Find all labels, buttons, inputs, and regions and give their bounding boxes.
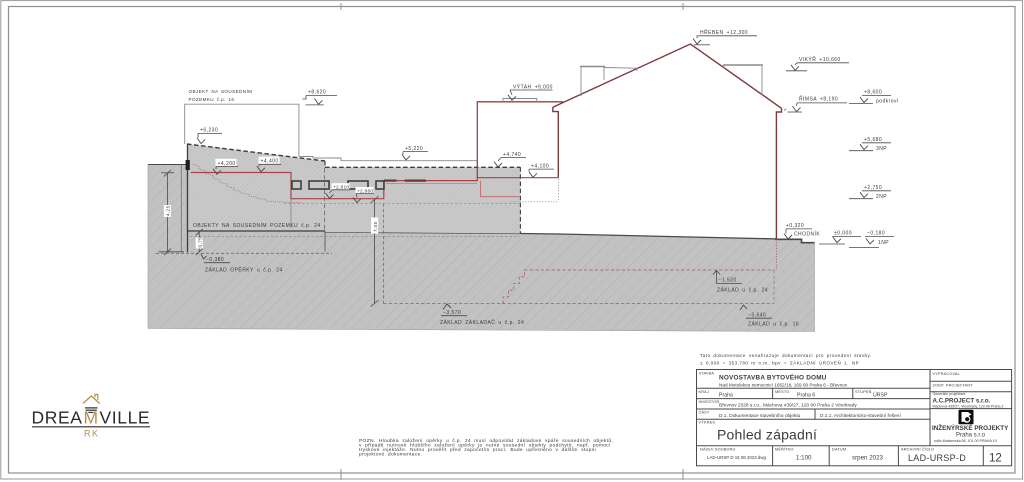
svg-text:D.1.1. Architektonicko-stavebn: D.1.1. Architektonicko-stavební řešení	[820, 413, 901, 419]
svg-text:MĚŘÍTKO: MĚŘÍTKO	[775, 447, 794, 452]
svg-text:−0,380: −0,380	[206, 257, 224, 263]
svg-text:+8,600: +8,600	[864, 90, 882, 96]
svg-text:+4,740: +4,740	[503, 152, 521, 158]
svg-text:A.C.PROJECT s.r.o.: A.C.PROJECT s.r.o.	[933, 397, 991, 404]
svg-text:DATUM: DATUM	[832, 448, 846, 452]
svg-text:−1,520: −1,520	[719, 278, 737, 284]
svg-text:+2,750: +2,750	[864, 185, 882, 191]
svg-text:Pohled západní: Pohled západní	[717, 427, 817, 443]
svg-text:ČÁST: ČÁST	[699, 410, 710, 415]
svg-text:VÝKRES: VÝKRES	[699, 421, 716, 425]
svg-text:KRAJ: KRAJ	[699, 390, 710, 394]
svg-text:OBJEKT NA SOUSEDNÍM: OBJEKT NA SOUSEDNÍM	[189, 88, 253, 94]
svg-text:POZEMKU č.p. 16: POZEMKU č.p. 16	[189, 97, 235, 102]
svg-text:+5,680: +5,680	[864, 137, 882, 143]
svg-text:12: 12	[989, 453, 1002, 465]
svg-text:ZÁKLAD u č.p. 24: ZÁKLAD u č.p. 24	[717, 287, 768, 294]
svg-text:Břevnov 2528 s.r.o., Máchova 4: Břevnov 2528 s.r.o., Máchova 439/27, 120…	[719, 403, 857, 409]
svg-text:ÚRSP: ÚRSP	[873, 391, 888, 398]
svg-text:2NP: 2NP	[876, 194, 887, 200]
svg-text:INŽENÝRSKÉ PROJEKTY: INŽENÝRSKÉ PROJEKTY	[932, 423, 1009, 432]
svg-text:CHODNÍK: CHODNÍK	[794, 231, 820, 238]
svg-text:−3,570: −3,570	[443, 310, 461, 316]
svg-text:LAD-URSP-D: LAD-URSP-D	[908, 453, 966, 463]
svg-text:Generální projektant:: Generální projektant:	[933, 392, 967, 396]
svg-text:srpen 2023: srpen 2023	[852, 454, 884, 461]
svg-text:1NP: 1NP	[878, 240, 889, 246]
svg-text:+4,100: +4,100	[531, 163, 549, 169]
svg-text:0,75: 0,75	[197, 237, 202, 248]
svg-text:sídlo Moskevská 58, 101 00 PRA: sídlo Moskevská 58, 101 00 PRAHA 10	[934, 439, 997, 443]
svg-text:INVESTOR: INVESTOR	[699, 400, 720, 404]
svg-text:±0,000: ±0,000	[834, 230, 852, 236]
svg-text:+4,400: +4,400	[261, 159, 279, 165]
svg-text:4,25: 4,25	[166, 205, 171, 216]
svg-text:ZÁKLAD u č.p. 16: ZÁKLAD u č.p. 16	[748, 321, 799, 328]
svg-text:LAD-URSP D 15 08 2023.dwg: LAD-URSP D 15 08 2023.dwg	[707, 455, 767, 460]
svg-text:STAVBA: STAVBA	[699, 372, 715, 376]
svg-text:Praha 6: Praha 6	[797, 392, 815, 398]
svg-text:ARCHIVNÍ ČÍSLO: ARCHIVNÍ ČÍSLO	[901, 447, 934, 452]
svg-text:−3,640: −3,640	[748, 313, 766, 319]
svg-text:podkroví: podkroví	[876, 99, 899, 105]
svg-text:Praha s.r.o: Praha s.r.o	[956, 433, 986, 439]
svg-text:VIKÝŘ +10,660: VIKÝŘ +10,660	[799, 55, 841, 63]
svg-text:VILLE: VILLE	[100, 408, 151, 428]
svg-text:Nad Motolskou nemocnicí 1662/1: Nad Motolskou nemocnicí 1662/18, 169 00 …	[719, 382, 848, 387]
svg-text:ŘÍMSA +8,190: ŘÍMSA +8,190	[799, 95, 838, 103]
svg-text:± 0,000 = 353,780 m n.m. bpv =: ± 0,000 = 353,780 m n.m. bpv = ZÁKLADNÍ …	[700, 359, 859, 365]
svg-text:3NP: 3NP	[876, 146, 887, 152]
svg-text:ZÁKLAD ZÁKLADAČ u č.p. 24: ZÁKLAD ZÁKLADAČ u č.p. 24	[440, 319, 524, 326]
svg-text:+4,200: +4,200	[218, 161, 236, 167]
svg-text:RK: RK	[84, 429, 100, 439]
svg-text:D.1. Dokumentace stavebního ob: D.1. Dokumentace stavebního objektu	[719, 413, 801, 419]
svg-text:+8,620: +8,620	[308, 90, 326, 96]
svg-text:Praha: Praha	[719, 392, 733, 398]
svg-text:NOVOSTAVBA BYTOVÉHO DOMU: NOVOSTAVBA BYTOVÉHO DOMU	[719, 373, 827, 382]
svg-text:OBJEKTY NA SOUSEDNÍM POZEMK: OBJEKTY NA SOUSEDNÍM POZEMKU č.p. 24	[193, 222, 321, 229]
svg-text:VÝTAH +9,000: VÝTAH +9,000	[513, 83, 553, 90]
svg-text:STUPEŇ: STUPEŇ	[855, 389, 872, 394]
svg-text:+5,220: +5,220	[405, 146, 423, 152]
svg-text:HŘEBEN +12,300: HŘEBEN +12,300	[700, 28, 748, 36]
svg-text:Máchova 439/27, Vinohrady, 120: Máchova 439/27, Vinohrady, 120 00 Praha …	[933, 404, 1004, 408]
svg-text:7,05: 7,05	[373, 221, 378, 232]
svg-text:1:100: 1:100	[796, 454, 812, 461]
svg-text:projektové dokumentace.: projektové dokumentace.	[359, 452, 422, 458]
svg-text:ZÁKLAD OPĚRKY u č.p. 24: ZÁKLAD OPĚRKY u č.p. 24	[205, 266, 283, 274]
svg-text:Tato dokumentace nenahrazuje d: Tato dokumentace nenahrazuje dokumentaci…	[700, 353, 872, 358]
svg-text:MĚSTO: MĚSTO	[775, 389, 789, 394]
svg-text:NÁZEV SOUBORU: NÁZEV SOUBORU	[700, 448, 736, 452]
svg-text:ZODP. PROJEKTANT: ZODP. PROJEKTANT	[933, 383, 974, 387]
svg-text:DREA: DREA	[32, 408, 83, 428]
svg-text:−0,180: −0,180	[867, 230, 885, 236]
svg-text:VYPRACOVAL: VYPRACOVAL	[933, 372, 960, 376]
svg-text:+0,320: +0,320	[786, 223, 804, 229]
svg-text:+6,230: +6,230	[200, 128, 218, 134]
